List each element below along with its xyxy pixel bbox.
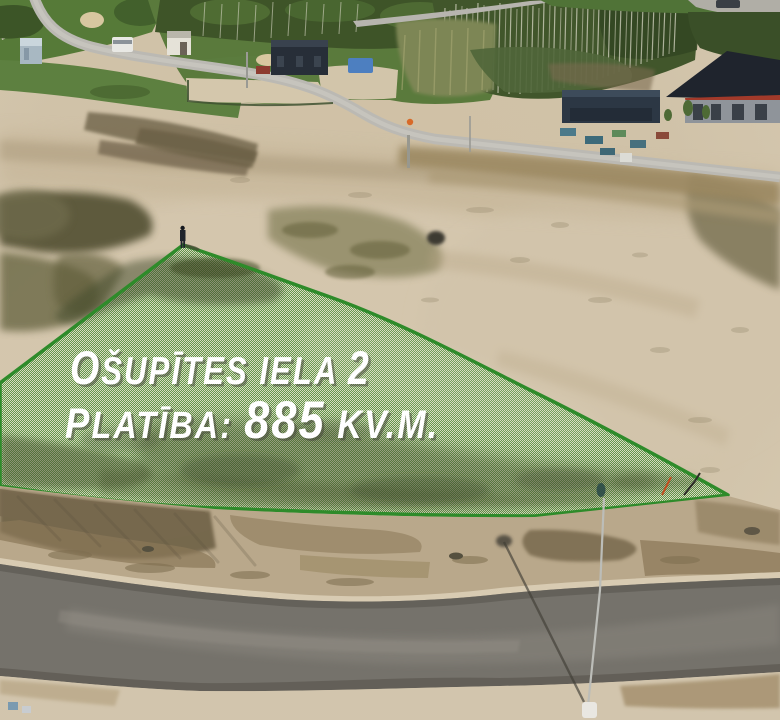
svg-text:OŠUPĪTES IELA 2: OŠUPĪTES IELA 2 xyxy=(70,342,371,395)
